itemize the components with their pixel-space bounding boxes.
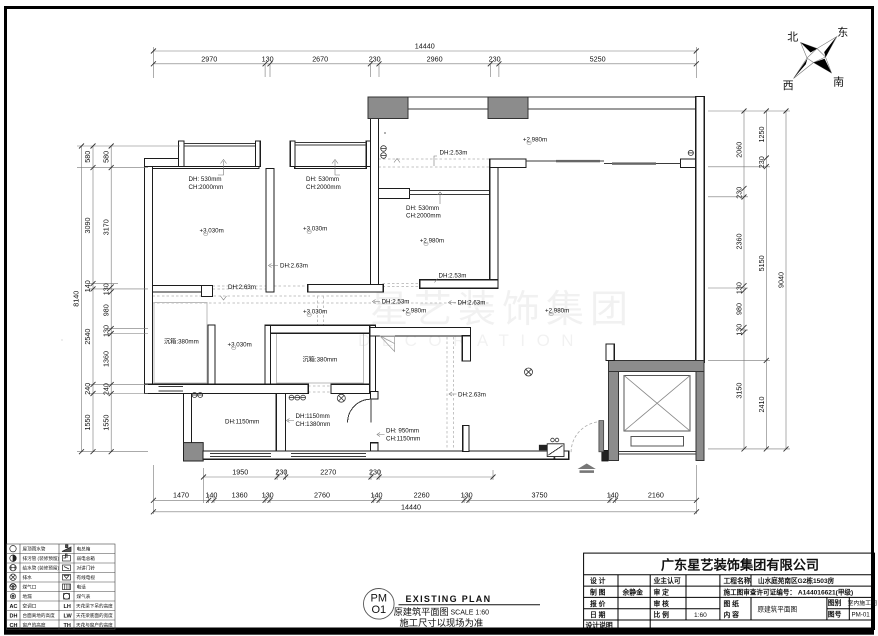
svg-text:天花与窗户的高度: 天花与窗户的高度 xyxy=(76,622,113,629)
svg-text:审 核: 审 核 xyxy=(654,599,670,608)
svg-text:1550: 1550 xyxy=(101,415,110,431)
svg-text:O1: O1 xyxy=(371,604,386,616)
svg-text:2760: 2760 xyxy=(314,491,330,500)
svg-text:14440: 14440 xyxy=(401,502,421,511)
svg-text:1360: 1360 xyxy=(232,491,248,500)
svg-text:1:60: 1:60 xyxy=(694,612,707,619)
svg-text:设计说明: 设计说明 xyxy=(586,620,613,629)
svg-text:SCALE 1:60: SCALE 1:60 xyxy=(451,609,490,616)
svg-text:+2.980m: +2.980m xyxy=(523,137,547,144)
svg-text:图 纸: 图 纸 xyxy=(724,599,740,608)
svg-text:130: 130 xyxy=(262,55,274,64)
svg-text:+2.980m: +2.980m xyxy=(402,308,426,315)
svg-text:980: 980 xyxy=(101,304,110,316)
svg-text:130: 130 xyxy=(101,325,110,337)
svg-text:2410: 2410 xyxy=(757,397,766,413)
svg-text:业主认可: 业主认可 xyxy=(654,576,681,585)
svg-text:2970: 2970 xyxy=(201,55,217,64)
svg-text:140: 140 xyxy=(371,491,383,500)
svg-text:130: 130 xyxy=(735,324,744,336)
svg-text:地漏: 地漏 xyxy=(23,593,33,600)
svg-text:CH: CH xyxy=(10,623,18,629)
svg-text:CH:1150mm: CH:1150mm xyxy=(386,436,420,443)
svg-text:DH:2.63m: DH:2.63m xyxy=(280,263,308,270)
svg-text:广东星艺装饰集团有限公司: 广东星艺装饰集团有限公司 xyxy=(661,557,819,573)
svg-text:图号: 图号 xyxy=(828,609,842,618)
svg-text:工程名称: 工程名称 xyxy=(724,576,751,585)
svg-text:报 价: 报 价 xyxy=(590,599,606,608)
svg-text:空调口: 空调口 xyxy=(23,603,37,610)
svg-text:+2.980m: +2.980m xyxy=(420,238,444,245)
svg-text:图别: 图别 xyxy=(828,598,842,607)
svg-text:130: 130 xyxy=(262,491,274,500)
svg-text:140: 140 xyxy=(607,491,619,500)
svg-text:窗户的高度: 窗户的高度 xyxy=(23,622,46,629)
svg-text:CH:2000mm: CH:2000mm xyxy=(189,184,224,191)
svg-text:DH: DH xyxy=(10,613,18,619)
svg-text:室内施工图: 室内施工图 xyxy=(848,599,878,607)
svg-text:9040: 9040 xyxy=(777,272,786,288)
svg-text:230: 230 xyxy=(369,55,381,64)
svg-text:LW: LW xyxy=(64,613,73,619)
svg-text:南: 南 xyxy=(833,75,844,88)
svg-text:1550: 1550 xyxy=(83,415,92,431)
svg-text:制 图: 制 图 xyxy=(590,588,606,597)
svg-text:设 计: 设 计 xyxy=(590,576,606,585)
svg-text:2060: 2060 xyxy=(735,142,744,158)
svg-text:沉箱:380mm: 沉箱:380mm xyxy=(303,356,338,364)
svg-text:2270: 2270 xyxy=(320,468,336,477)
svg-text:DH: 530mm: DH: 530mm xyxy=(306,176,339,183)
svg-text:屋顶雨水管: 屋顶雨水管 xyxy=(23,546,46,553)
svg-text:14440: 14440 xyxy=(415,42,435,51)
svg-text:EXISTING PLAN: EXISTING PLAN xyxy=(406,594,492,604)
svg-text:天花梁底面的宽度: 天花梁底面的宽度 xyxy=(76,612,113,619)
svg-text:230: 230 xyxy=(489,55,501,64)
svg-text:TH: TH xyxy=(64,623,71,629)
svg-text:施工尺寸以现场为准: 施工尺寸以现场为准 xyxy=(400,617,484,628)
svg-text:煤气表: 煤气表 xyxy=(77,593,91,600)
svg-text:DH: 950mm: DH: 950mm xyxy=(386,428,419,435)
svg-text:有线电视: 有线电视 xyxy=(77,574,96,581)
svg-text:施工图审查许可证编号： A144016621(甲级): 施工图审查许可证编号： A144016621(甲级) xyxy=(724,588,854,597)
svg-text:PM: PM xyxy=(371,593,388,605)
svg-text:3090: 3090 xyxy=(83,218,92,234)
svg-text:140: 140 xyxy=(83,280,92,292)
svg-text:3150: 3150 xyxy=(735,383,744,399)
svg-text:240: 240 xyxy=(101,383,110,395)
svg-text:2160: 2160 xyxy=(648,491,664,500)
svg-text:DH: 530mm: DH: 530mm xyxy=(189,176,222,183)
svg-text:3750: 3750 xyxy=(532,491,548,500)
svg-text:130: 130 xyxy=(735,282,744,294)
svg-text:240: 240 xyxy=(83,383,92,395)
svg-text:DH:2.53m: DH:2.53m xyxy=(440,150,468,157)
svg-text:230: 230 xyxy=(369,468,381,477)
svg-text:230: 230 xyxy=(735,187,744,199)
svg-text:东: 东 xyxy=(837,26,848,39)
svg-text:2540: 2540 xyxy=(83,329,92,345)
svg-text:PM-01: PM-01 xyxy=(852,611,871,618)
svg-text:沉箱:380mm: 沉箱:380mm xyxy=(164,338,199,346)
svg-text:排污管 (装修预留): 排污管 (装修预留) xyxy=(23,555,60,562)
svg-text:内 容: 内 容 xyxy=(724,610,740,619)
svg-text:比 例: 比 例 xyxy=(654,610,670,619)
svg-text:电话: 电话 xyxy=(77,584,87,591)
svg-text:弱电总箱: 弱电总箱 xyxy=(77,555,96,562)
svg-text:天花梁下吊的高度: 天花梁下吊的高度 xyxy=(76,603,113,610)
svg-text:DH:2.53m: DH:2.53m xyxy=(382,299,410,306)
svg-text:130: 130 xyxy=(101,283,110,295)
svg-text:给水管 (装修预留): 给水管 (装修预留) xyxy=(23,565,60,572)
svg-text:2960: 2960 xyxy=(427,55,443,64)
svg-text:原建筑平面图: 原建筑平面图 xyxy=(394,606,449,617)
svg-text:山水庭苑南区G2栋1503房: 山水庭苑南区G2栋1503房 xyxy=(758,576,835,585)
svg-text:日 期: 日 期 xyxy=(590,610,606,619)
svg-text:AC: AC xyxy=(10,604,18,610)
svg-text:+3.030m: +3.030m xyxy=(228,342,252,349)
svg-text:8140: 8140 xyxy=(72,291,81,307)
svg-text:煤气口: 煤气口 xyxy=(23,584,37,591)
svg-text:230: 230 xyxy=(757,156,766,168)
svg-text:DH:2.53m: DH:2.53m xyxy=(439,273,467,280)
svg-text:DH: 530mm: DH: 530mm xyxy=(406,205,439,212)
svg-text:580: 580 xyxy=(101,151,110,163)
svg-text:CH:2000mm: CH:2000mm xyxy=(306,184,341,191)
svg-text:1470: 1470 xyxy=(173,491,189,500)
svg-text:3170: 3170 xyxy=(101,219,110,235)
svg-text:+2.980m: +2.980m xyxy=(545,308,569,315)
svg-text:审 定: 审 定 xyxy=(654,588,670,597)
svg-text:DH:2.63m: DH:2.63m xyxy=(228,284,256,291)
svg-text:130: 130 xyxy=(461,491,473,500)
svg-text:2260: 2260 xyxy=(414,491,430,500)
svg-text:DH:1150mm: DH:1150mm xyxy=(296,413,330,420)
svg-text:原建筑平面图: 原建筑平面图 xyxy=(758,605,798,614)
svg-text:排水: 排水 xyxy=(23,574,33,581)
svg-text:北: 北 xyxy=(787,31,798,44)
svg-text:2360: 2360 xyxy=(735,234,744,250)
svg-text:DH:2.63m: DH:2.63m xyxy=(458,392,486,399)
svg-text:140: 140 xyxy=(205,491,217,500)
svg-text:+3.030m: +3.030m xyxy=(200,228,224,235)
svg-text:余静金: 余静金 xyxy=(622,588,644,597)
svg-text:西: 西 xyxy=(783,80,794,92)
svg-text:1950: 1950 xyxy=(232,468,248,477)
svg-text:+3.030m: +3.030m xyxy=(303,309,327,316)
svg-text:580: 580 xyxy=(83,151,92,163)
svg-text:电总箱: 电总箱 xyxy=(77,546,91,553)
svg-text:CH:1380mm: CH:1380mm xyxy=(296,421,331,428)
svg-text:1250: 1250 xyxy=(757,127,766,143)
svg-text:230: 230 xyxy=(275,468,287,477)
svg-text:980: 980 xyxy=(735,303,744,315)
svg-text:DH:2.63m: DH:2.63m xyxy=(458,300,486,307)
svg-text:5250: 5250 xyxy=(590,55,606,64)
svg-text:对讲门铃: 对讲门铃 xyxy=(77,565,96,572)
svg-text:CH:2000mm: CH:2000mm xyxy=(406,213,441,220)
svg-text:5150: 5150 xyxy=(757,255,766,271)
svg-text:+3.030m: +3.030m xyxy=(303,226,327,233)
svg-text:2670: 2670 xyxy=(312,55,328,64)
svg-text:DH:1150mm: DH:1150mm xyxy=(225,419,259,426)
svg-text:1360: 1360 xyxy=(101,351,110,367)
svg-text:LH: LH xyxy=(64,604,71,610)
svg-text:台面离地的高度: 台面离地的高度 xyxy=(23,612,56,619)
